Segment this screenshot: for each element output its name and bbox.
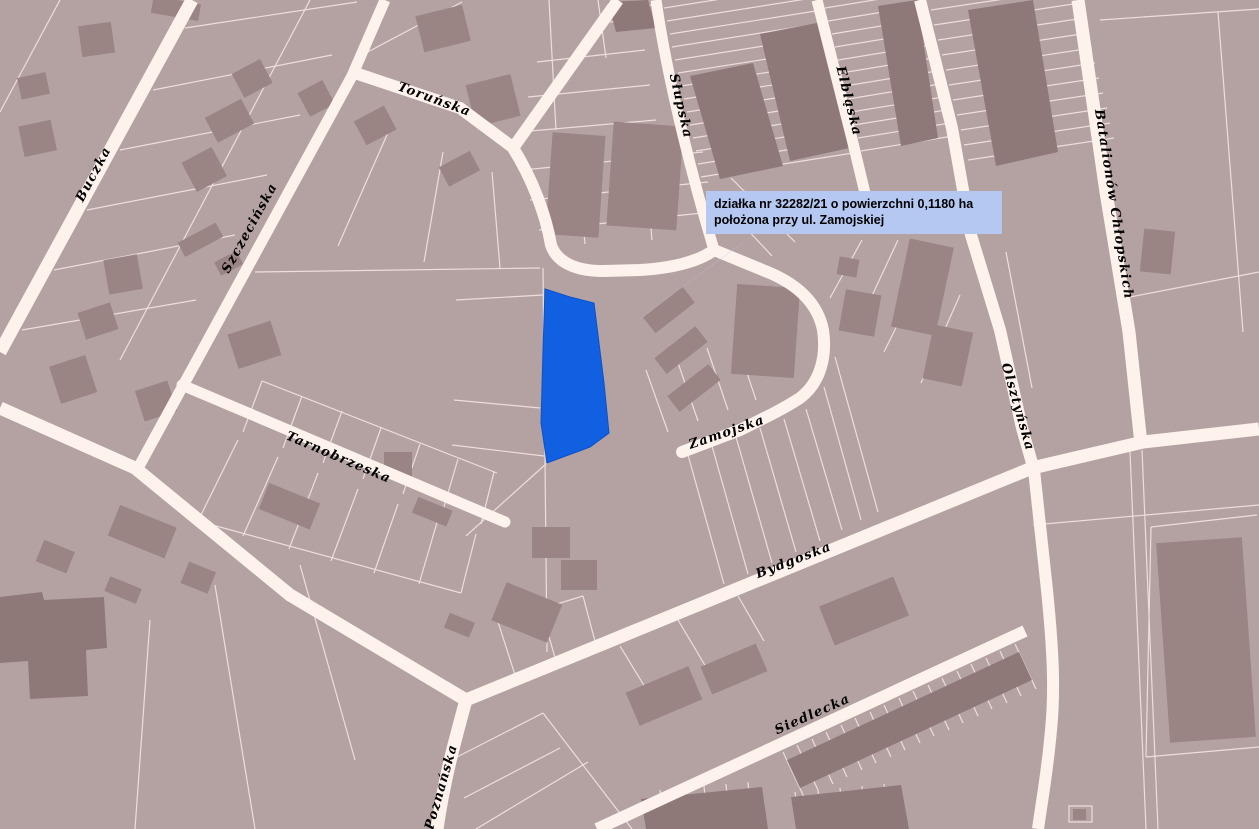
street-labels: Buczka Szczecińska Toruńska Słupska Elbl… (73, 64, 1136, 829)
road-north-stub (513, 0, 618, 148)
map-canvas[interactable]: Buczka Szczecińska Toruńska Słupska Elbl… (0, 0, 1259, 829)
buildings (17, 0, 1256, 820)
highlighted-parcel[interactable] (541, 289, 609, 463)
street-label-tarnobrzeska: Tarnobrzeska (284, 429, 393, 487)
street-label-torunska: Toruńska (395, 80, 472, 120)
street-label-zamojska: Zamojska (686, 413, 767, 453)
parcel-annotation-line1: działka nr 32282/21 o powierzchni 0,1180… (714, 196, 994, 212)
annotation-leader-line (584, 238, 749, 360)
industrial-building (0, 592, 107, 699)
street-label-buczka: Buczka (73, 144, 115, 205)
parcel-annotation-box: działka nr 32282/21 o powierzchni 0,1180… (706, 191, 1002, 234)
street-label-olsztynska: Olsztyńska (998, 361, 1037, 452)
parcel-annotation-line2: położona przy ul. Zamojskiej (714, 212, 994, 228)
cadastral-map[interactable]: Buczka Szczecińska Toruńska Słupska Elbl… (0, 0, 1259, 829)
